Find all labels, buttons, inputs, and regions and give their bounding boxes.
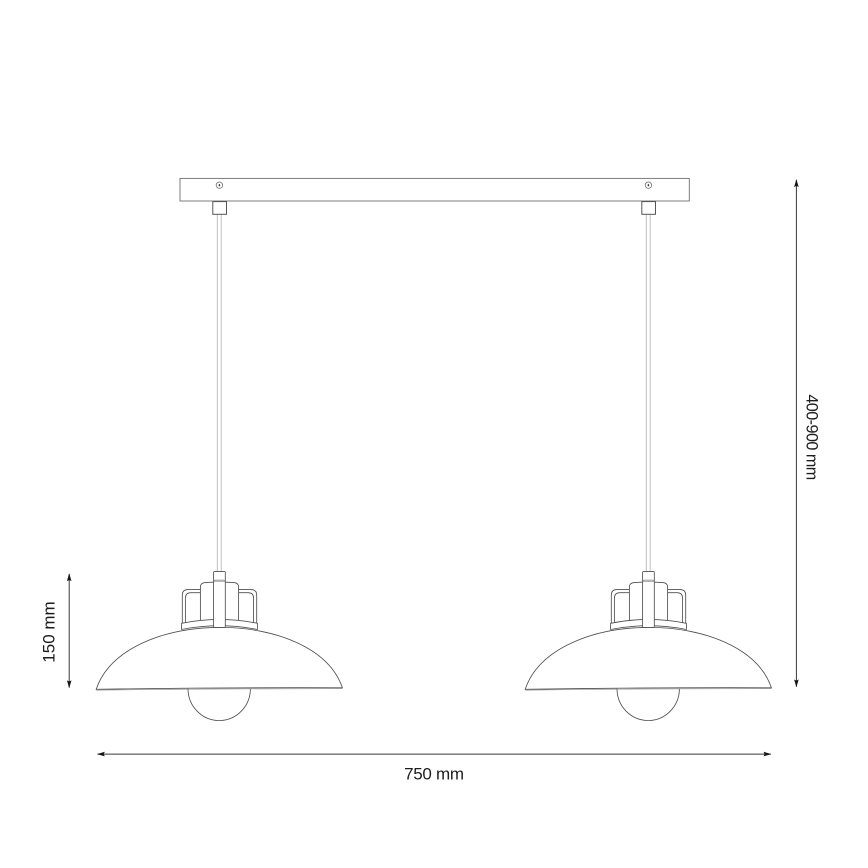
svg-text:150 mm: 150 mm (40, 601, 59, 662)
svg-text:750 mm: 750 mm (404, 764, 464, 783)
svg-text:400-900 mm: 400-900 mm (803, 394, 821, 479)
